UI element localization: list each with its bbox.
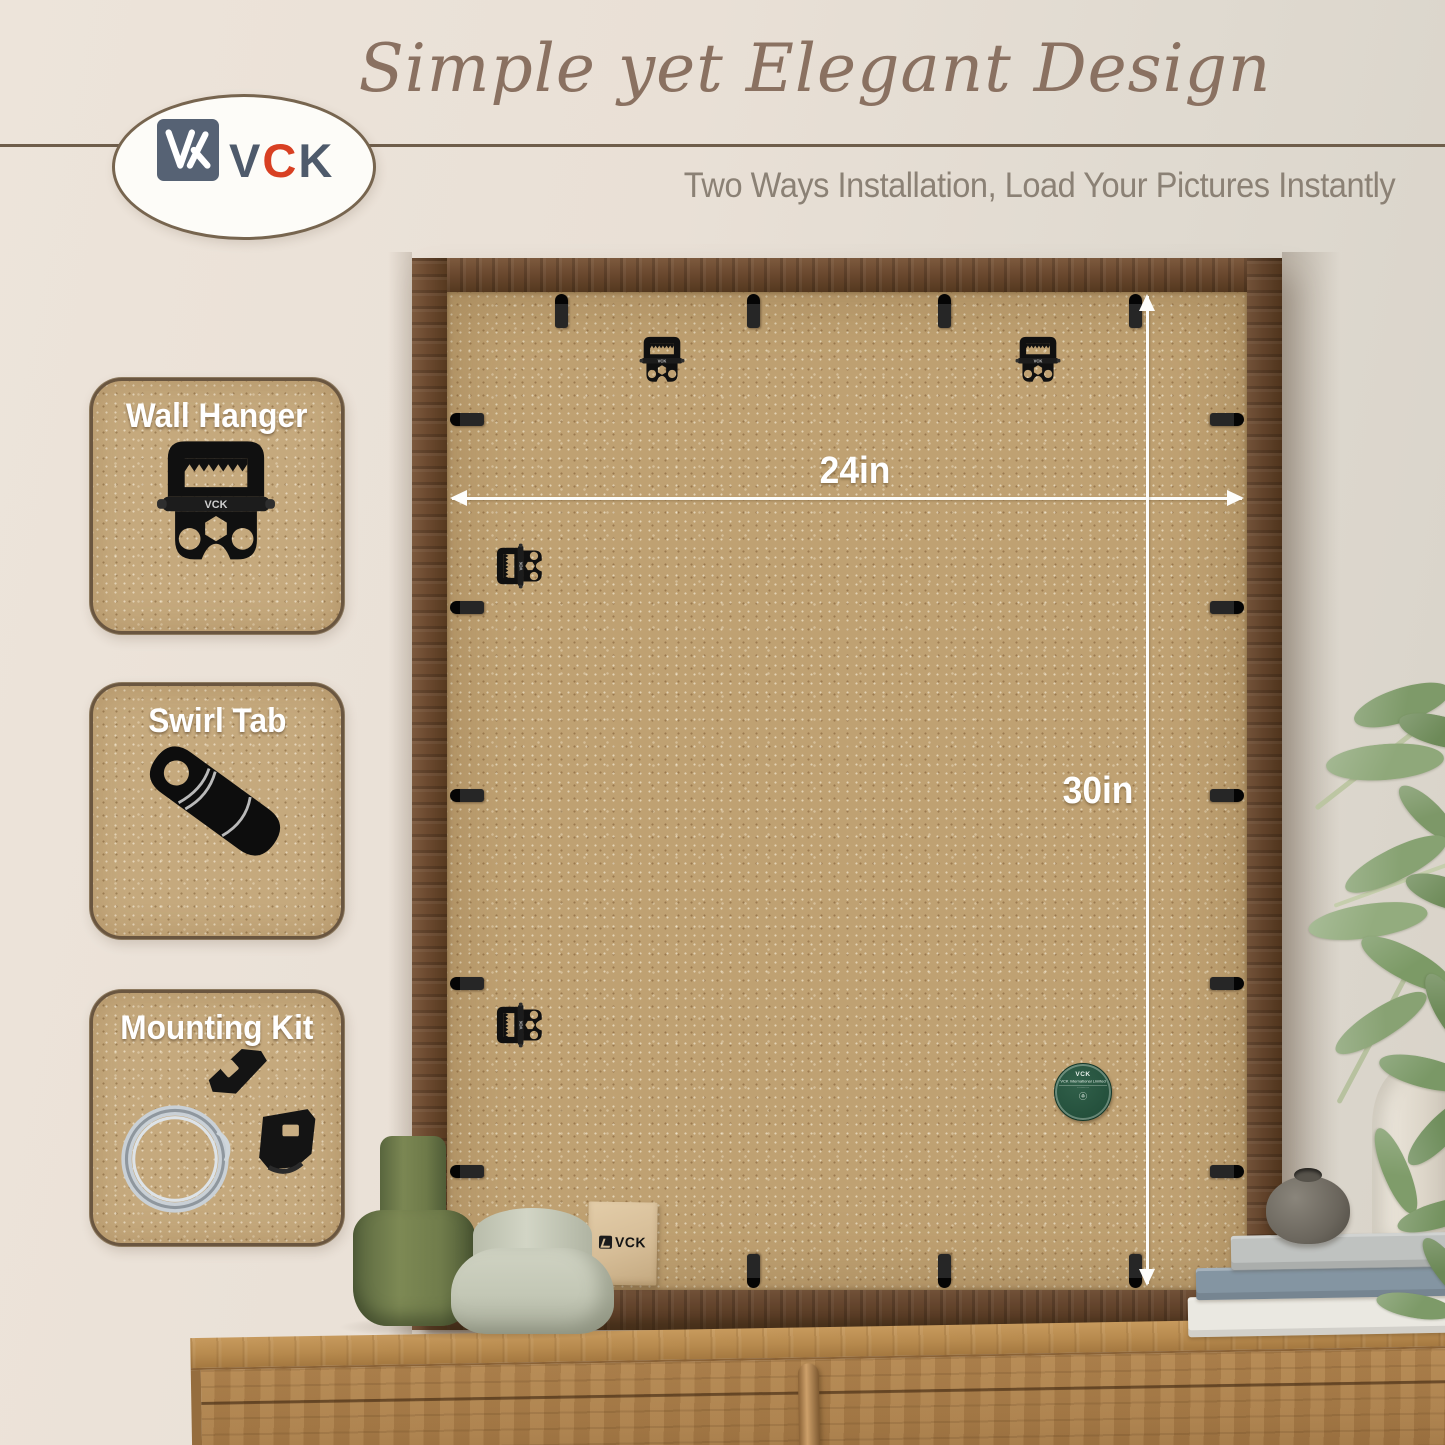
- packet-brand-text: VCK: [615, 1234, 646, 1251]
- plant-leaf: [1414, 1232, 1445, 1304]
- sticker-content: VCK VCK International Limited ··········…: [1055, 1070, 1111, 1100]
- wall-hanger-hardware-side: [496, 543, 550, 589]
- swivel-tab: [450, 977, 484, 990]
- plant-leaf: [1400, 1090, 1445, 1174]
- swivel-tab: [1210, 977, 1244, 990]
- swivel-tab: [1210, 1165, 1244, 1178]
- sage-vase: [451, 1208, 614, 1334]
- brand-wordmark: VCK: [229, 133, 334, 188]
- page-subtitle-text: Two Ways Installation, Load Your Picture…: [684, 166, 1395, 206]
- brand-letter-k: K: [298, 134, 334, 187]
- recycle-icon: ♻: [1079, 1092, 1087, 1100]
- page-subtitle: Two Ways Installation, Load Your Picture…: [640, 166, 1440, 206]
- callout-label: Wall Hanger: [93, 397, 341, 436]
- callout-label: Swirl Tab: [93, 702, 341, 741]
- frame-edge-right: [1247, 258, 1282, 1330]
- sideboard-handle: [798, 1363, 821, 1445]
- certification-sticker: VCK VCK International Limited ··········…: [1054, 1063, 1112, 1121]
- sticker-brand: VCK: [1055, 1070, 1111, 1078]
- plant: [1280, 660, 1445, 1360]
- wall-hanger-hardware: [639, 336, 685, 390]
- height-dimension-label: 30in: [1018, 770, 1136, 813]
- callout-card-swirl-tab: Swirl Tab: [90, 683, 344, 939]
- swirl-tab-photo: [139, 736, 290, 867]
- sticker-small-print: ··········: [1055, 1087, 1111, 1091]
- brand-logo: VCK: [112, 94, 376, 240]
- brand-letter-v: V: [229, 134, 262, 187]
- swivel-tab: [747, 1254, 760, 1288]
- sticker-company-text: VCK International Limited: [1059, 1079, 1107, 1086]
- swivel-tab: [555, 294, 568, 328]
- plant-leaf: [1375, 1289, 1445, 1324]
- callout-card-wall-hanger: Wall Hanger: [90, 378, 344, 634]
- wall-hanger-hardware-side: [496, 1002, 550, 1048]
- plant-leaf: [1324, 738, 1445, 786]
- plant-leaf: [1329, 981, 1434, 1065]
- plant-leaf: [1376, 1048, 1445, 1097]
- width-dimension-arrow: [452, 497, 1242, 500]
- swivel-tab: [450, 601, 484, 614]
- frame-back: VCK VCK International Limited ··········…: [412, 258, 1282, 1330]
- frame-edge-top: [412, 258, 1282, 292]
- swivel-tab: [450, 789, 484, 802]
- swivel-tab: [938, 1254, 951, 1288]
- page-title: Simple yet Elegant Design: [185, 30, 1445, 107]
- brand-monogram-icon: [157, 119, 219, 181]
- swivel-tab: [1210, 789, 1244, 802]
- product-infographic: Simple yet Elegant Design Two Ways Insta…: [0, 0, 1445, 1445]
- swivel-tab: [1210, 413, 1244, 426]
- callout-card-mounting-kit: Mounting Kit: [90, 990, 344, 1246]
- swivel-tab: [450, 413, 484, 426]
- height-dimension-arrow: [1146, 296, 1149, 1284]
- wall-hanger-photo: [155, 439, 277, 581]
- mounting-clips-photo: [201, 1039, 327, 1189]
- swivel-tab: [747, 294, 760, 328]
- wall-hanger-hardware: [1015, 336, 1061, 390]
- swivel-tab: [1210, 601, 1244, 614]
- brand-letter-c: C: [262, 134, 298, 187]
- width-dimension-label: 24in: [785, 450, 925, 493]
- swivel-tab: [938, 294, 951, 328]
